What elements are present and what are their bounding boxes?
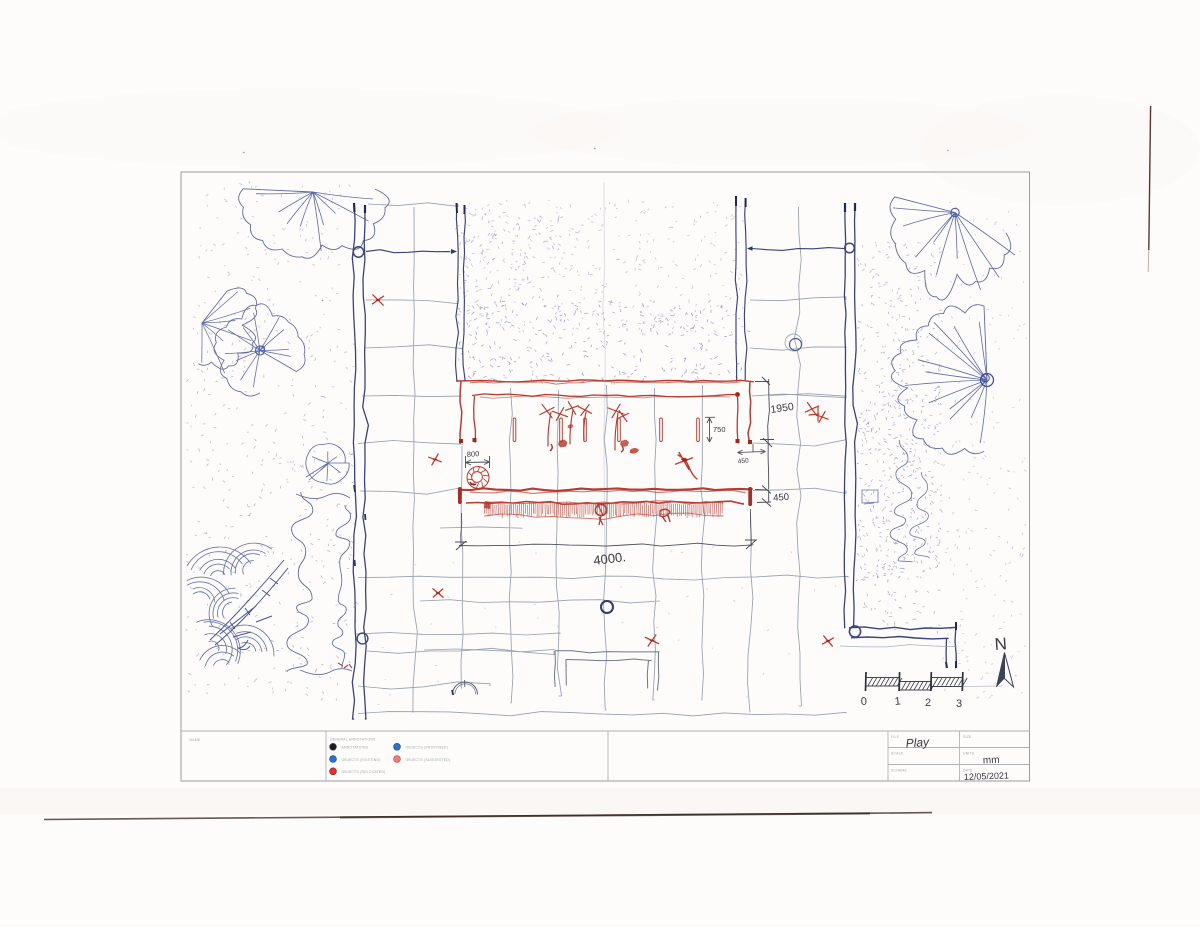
svg-text:mm: mm <box>983 755 1000 767</box>
svg-text:Play: Play <box>905 735 930 751</box>
svg-text:GENERAL ANNOTATIONS: GENERAL ANNOTATIONS <box>330 738 376 742</box>
svg-text:FILE: FILE <box>891 735 900 739</box>
svg-text:450: 450 <box>737 457 749 465</box>
svg-text:SCALE: SCALE <box>891 752 904 756</box>
svg-text:800: 800 <box>467 449 480 459</box>
svg-text:ANNOTATIONS: ANNOTATIONS <box>342 746 369 750</box>
svg-text:OBJECTS (PROPOSED): OBJECTS (PROPOSED) <box>406 746 449 750</box>
svg-text:12/05/2021: 12/05/2021 <box>964 770 1009 782</box>
svg-text:OBJECTS (EXISTING): OBJECTS (EXISTING) <box>342 758 381 762</box>
svg-text:OBJECTS (SUGGESTED): OBJECTS (SUGGESTED) <box>406 758 451 762</box>
svg-text:SIZE: SIZE <box>963 735 972 739</box>
svg-text:450: 450 <box>773 492 790 504</box>
svg-text:0: 0 <box>861 696 868 708</box>
svg-text:NAME: NAME <box>190 738 201 742</box>
svg-text:3: 3 <box>956 698 962 710</box>
svg-text:2: 2 <box>925 697 931 709</box>
svg-text:750: 750 <box>713 425 726 434</box>
svg-text:1: 1 <box>894 695 901 708</box>
svg-text:OBJECTS (RELOCATED): OBJECTS (RELOCATED) <box>342 770 386 774</box>
svg-text:N: N <box>994 634 1009 654</box>
svg-text:SCHEME: SCHEME <box>891 768 907 772</box>
svg-text:UNITS: UNITS <box>963 752 975 756</box>
